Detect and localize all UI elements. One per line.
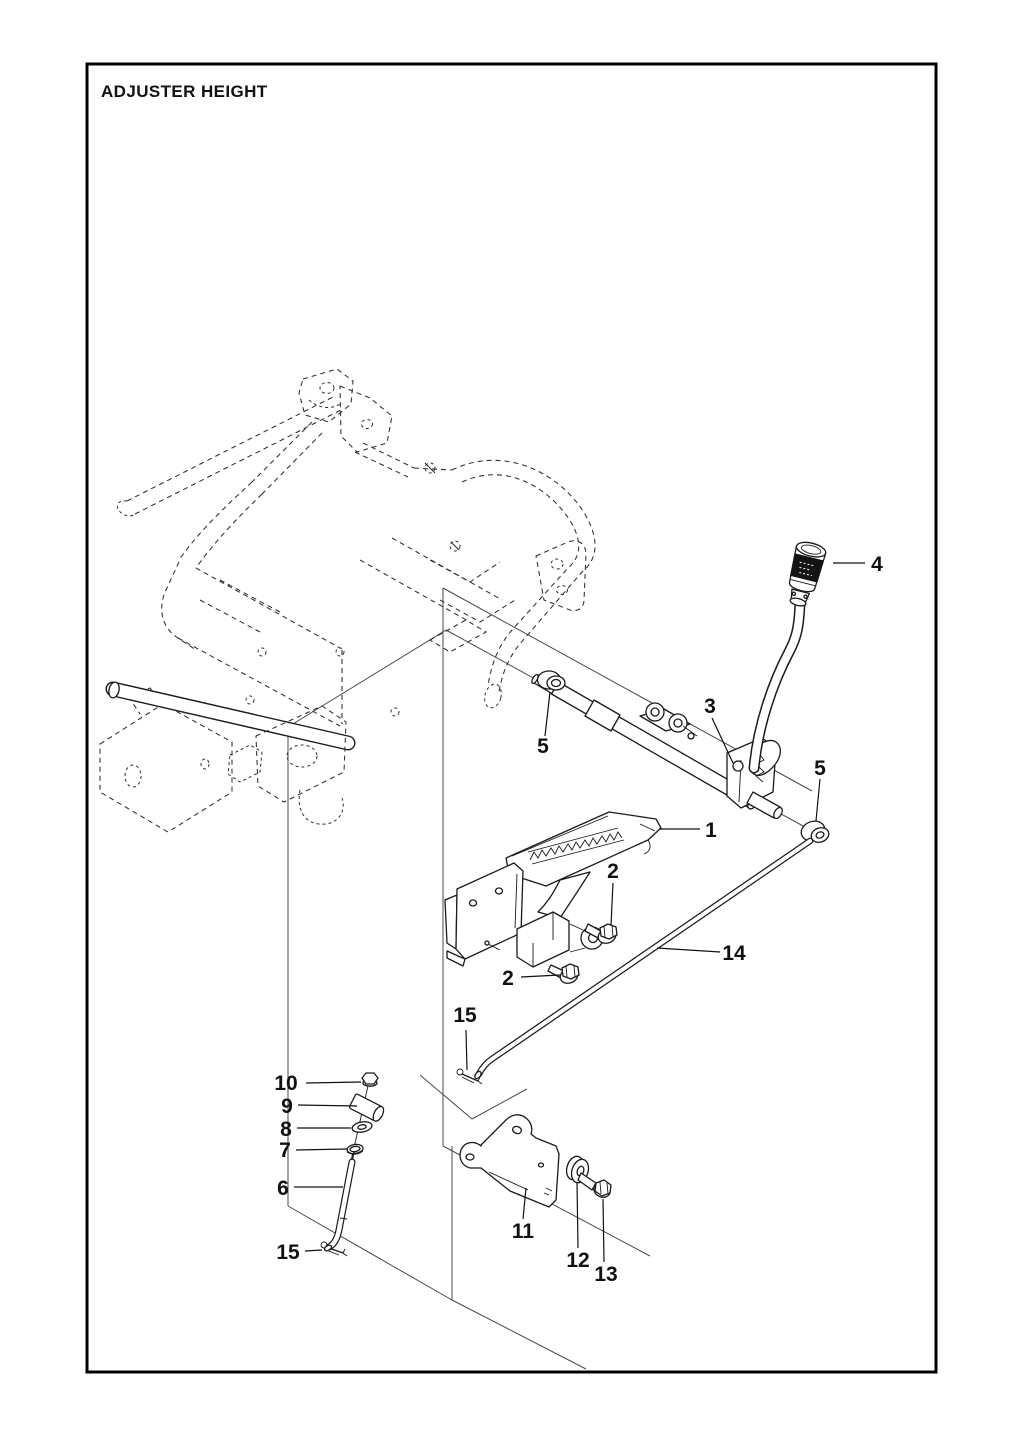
callout-5-left: 5 [537, 735, 549, 758]
callout-2-upper: 2 [607, 860, 619, 883]
part-4-knob [783, 540, 828, 609]
part-5-bushing-left [538, 671, 566, 690]
callout-10: 10 [274, 1072, 297, 1095]
callout-5-right: 5 [814, 757, 826, 780]
callout-3: 3 [704, 695, 716, 718]
callout-7: 7 [279, 1139, 291, 1162]
part-9-spacer [349, 1094, 386, 1123]
part-13-bolt [578, 1173, 613, 1200]
leader-line-10 [306, 1082, 361, 1083]
callout-1: 1 [705, 819, 717, 842]
parts-diagram: ADJUSTER HEIGHT [0, 0, 1024, 1435]
callout-15-lower: 15 [276, 1241, 300, 1264]
chassis-outline [100, 369, 595, 832]
page-title: ADJUSTER HEIGHT [101, 82, 268, 101]
leader-line-14 [657, 948, 720, 952]
callout-14: 14 [722, 942, 746, 965]
part-10-nut [362, 1073, 378, 1086]
leader-line-15-upper [466, 1030, 467, 1070]
leader-line-7 [296, 1149, 347, 1150]
leader-line-5-left [545, 692, 550, 736]
callout-15-upper: 15 [453, 1004, 477, 1027]
callout-11: 11 [512, 1220, 535, 1243]
callout-9: 9 [281, 1095, 293, 1118]
part-6-rod [324, 1152, 354, 1252]
callout-13: 13 [594, 1263, 617, 1286]
part-7-nut [346, 1143, 363, 1154]
part-1-ratchet-plate [506, 812, 661, 918]
part-11-bracket [460, 1115, 559, 1207]
leader-line-2-lower [521, 975, 560, 977]
leader-line-2-upper [611, 883, 613, 925]
leader-line-5-right [816, 779, 820, 821]
callout-2-lower: 2 [502, 967, 514, 990]
catalog-page: ADJUSTER HEIGHT [0, 0, 1024, 1435]
leader-line-15-lower [305, 1250, 322, 1251]
callout-4: 4 [871, 553, 883, 576]
leader-line-13 [603, 1199, 604, 1262]
projection-lines [288, 588, 814, 1369]
callout-8: 8 [280, 1118, 292, 1141]
leader-line-12 [577, 1182, 578, 1248]
part-8-washer [351, 1120, 372, 1133]
part-3-pivot-shaft [531, 604, 800, 820]
leader-line-9 [298, 1105, 357, 1106]
callout-6: 6 [277, 1177, 289, 1200]
part-5-bushing-right [798, 818, 830, 845]
callout-12: 12 [566, 1249, 589, 1272]
leader-line-3 [712, 718, 733, 763]
